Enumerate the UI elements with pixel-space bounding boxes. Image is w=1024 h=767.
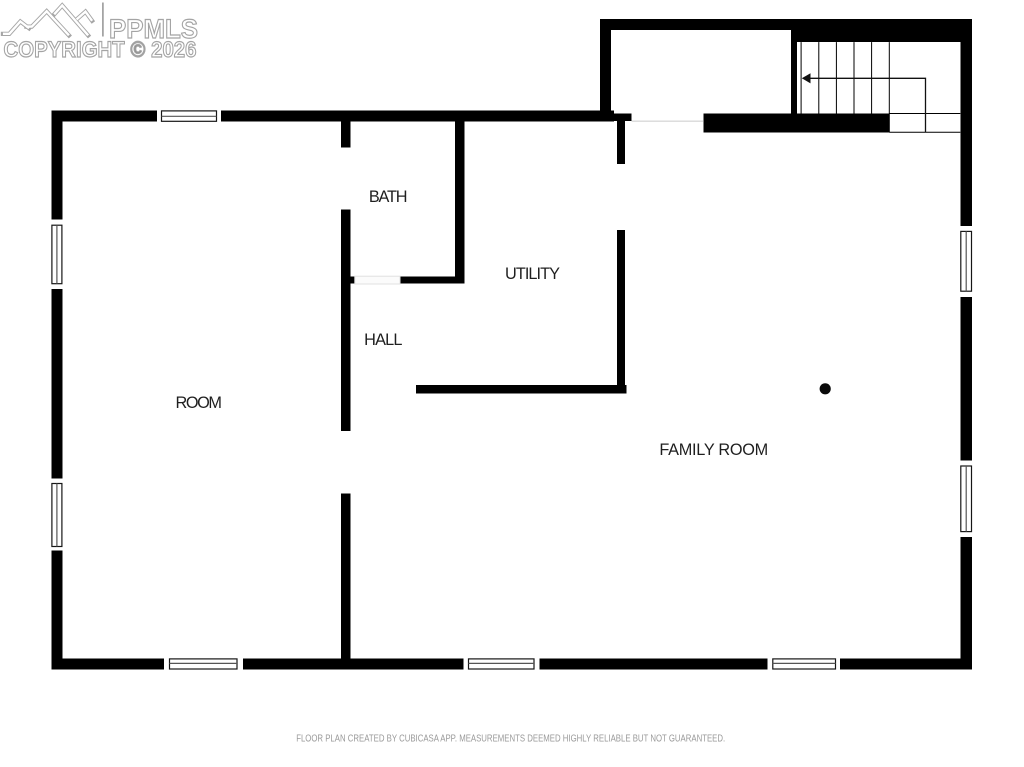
svg-text:COPYRIGHT © 2026: COPYRIGHT © 2026 xyxy=(4,37,197,62)
svg-text:BATH: BATH xyxy=(369,188,408,206)
svg-text:UTILITY: UTILITY xyxy=(505,265,560,283)
svg-text:FLOOR PLAN CREATED BY CUBICASA: FLOOR PLAN CREATED BY CUBICASA APP. MEAS… xyxy=(296,734,725,745)
svg-text:ROOM: ROOM xyxy=(175,394,222,412)
svg-text:FAMILY ROOM: FAMILY ROOM xyxy=(659,441,768,459)
svg-text:HALL: HALL xyxy=(364,331,402,349)
